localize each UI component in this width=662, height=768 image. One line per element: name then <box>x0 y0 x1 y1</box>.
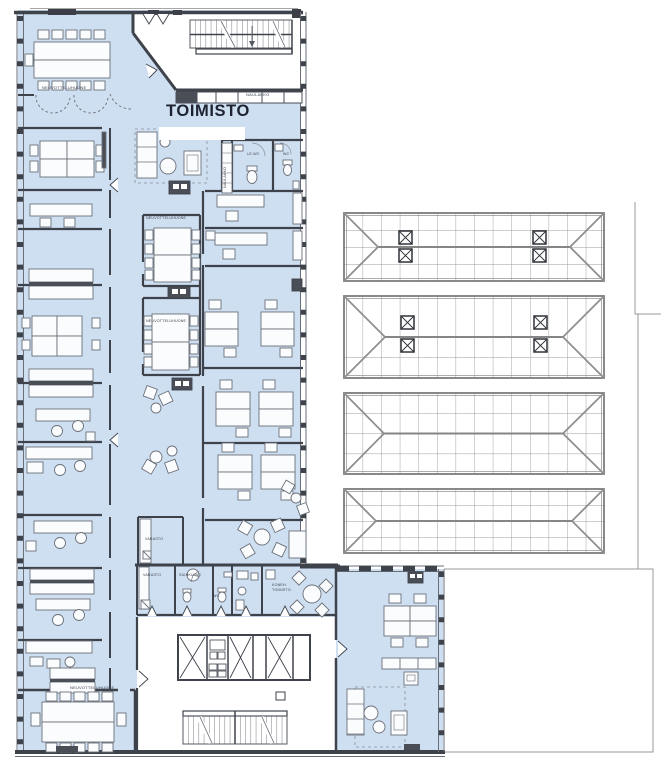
stair-rail <box>196 49 292 54</box>
room-label-meeting-bottom: NEUVOTTELUHUONE <box>70 686 114 690</box>
toilet <box>284 165 292 176</box>
room-label-wc-accessible: LE-WC <box>247 153 260 157</box>
toilet <box>183 592 191 602</box>
sofa <box>137 132 157 178</box>
desk <box>36 409 90 421</box>
roof-block-4 <box>344 489 604 553</box>
room-label-wc-lower: WC <box>213 595 219 599</box>
room-label-shower-wc: SUIHKU/WC <box>179 574 201 578</box>
desk <box>34 521 92 533</box>
desk-pair <box>29 369 93 397</box>
room-label-meeting-mid-2: NEUVOTTELUHUONE <box>146 320 186 324</box>
desk <box>30 204 92 216</box>
desk <box>26 641 92 653</box>
room-label-storage-lower: VARASTO <box>143 574 161 578</box>
armchair <box>184 151 201 175</box>
sink <box>234 145 243 151</box>
printer-station <box>292 279 302 291</box>
desk-pair <box>29 269 93 299</box>
printer-station <box>168 287 190 298</box>
desk <box>26 447 92 459</box>
desk <box>289 531 306 558</box>
meeting-table-top-left <box>25 30 110 90</box>
desk <box>217 195 264 207</box>
room-label-small-office-line2: TOIMISTO <box>272 589 291 593</box>
room-label-coat-rack-top: NAULAKKO <box>246 93 269 97</box>
desk-pair <box>30 569 94 594</box>
desk <box>215 233 267 245</box>
armchair <box>391 711 407 735</box>
printer-station <box>169 181 190 194</box>
room-label-meeting-top-left: NEUVOTTELUHUONE <box>42 86 86 90</box>
room-label-wc-upper: WC <box>283 153 289 157</box>
room-label-storage-upper: VARASTO <box>145 538 163 542</box>
floor-plan-drawing <box>0 0 662 768</box>
erased-text-patch <box>159 127 245 140</box>
sofa <box>347 689 364 735</box>
desk <box>36 599 90 610</box>
toilet <box>247 171 257 184</box>
printer <box>404 672 418 685</box>
roof-block-1 <box>344 213 604 281</box>
washbasin <box>275 144 283 151</box>
section-marker <box>276 692 285 700</box>
room-label-meeting-mid-1: NEUVOTTELUHUONE <box>146 217 186 221</box>
printer-station <box>172 378 192 390</box>
terrace-outline <box>444 569 653 752</box>
roof-block-2 <box>344 296 604 378</box>
cabinet <box>293 193 302 224</box>
floor-plan-page: TOIMISTO NEUVOTTELUHUONE NAULAKKO NAULAK… <box>0 0 662 768</box>
site-boundary <box>444 202 661 752</box>
cabinet <box>293 231 302 260</box>
roof-structures <box>344 213 604 553</box>
page-title: TOIMISTO <box>166 103 250 120</box>
sink <box>224 572 232 577</box>
copier <box>408 572 423 583</box>
room-label-coat-rack-side: NAULAKKO <box>224 167 228 188</box>
roof-block-3 <box>344 393 604 474</box>
shelf-row <box>382 658 436 669</box>
corner-block <box>292 9 301 18</box>
stairs-top <box>190 20 292 54</box>
sink <box>293 181 299 189</box>
elevator-block <box>178 635 310 680</box>
